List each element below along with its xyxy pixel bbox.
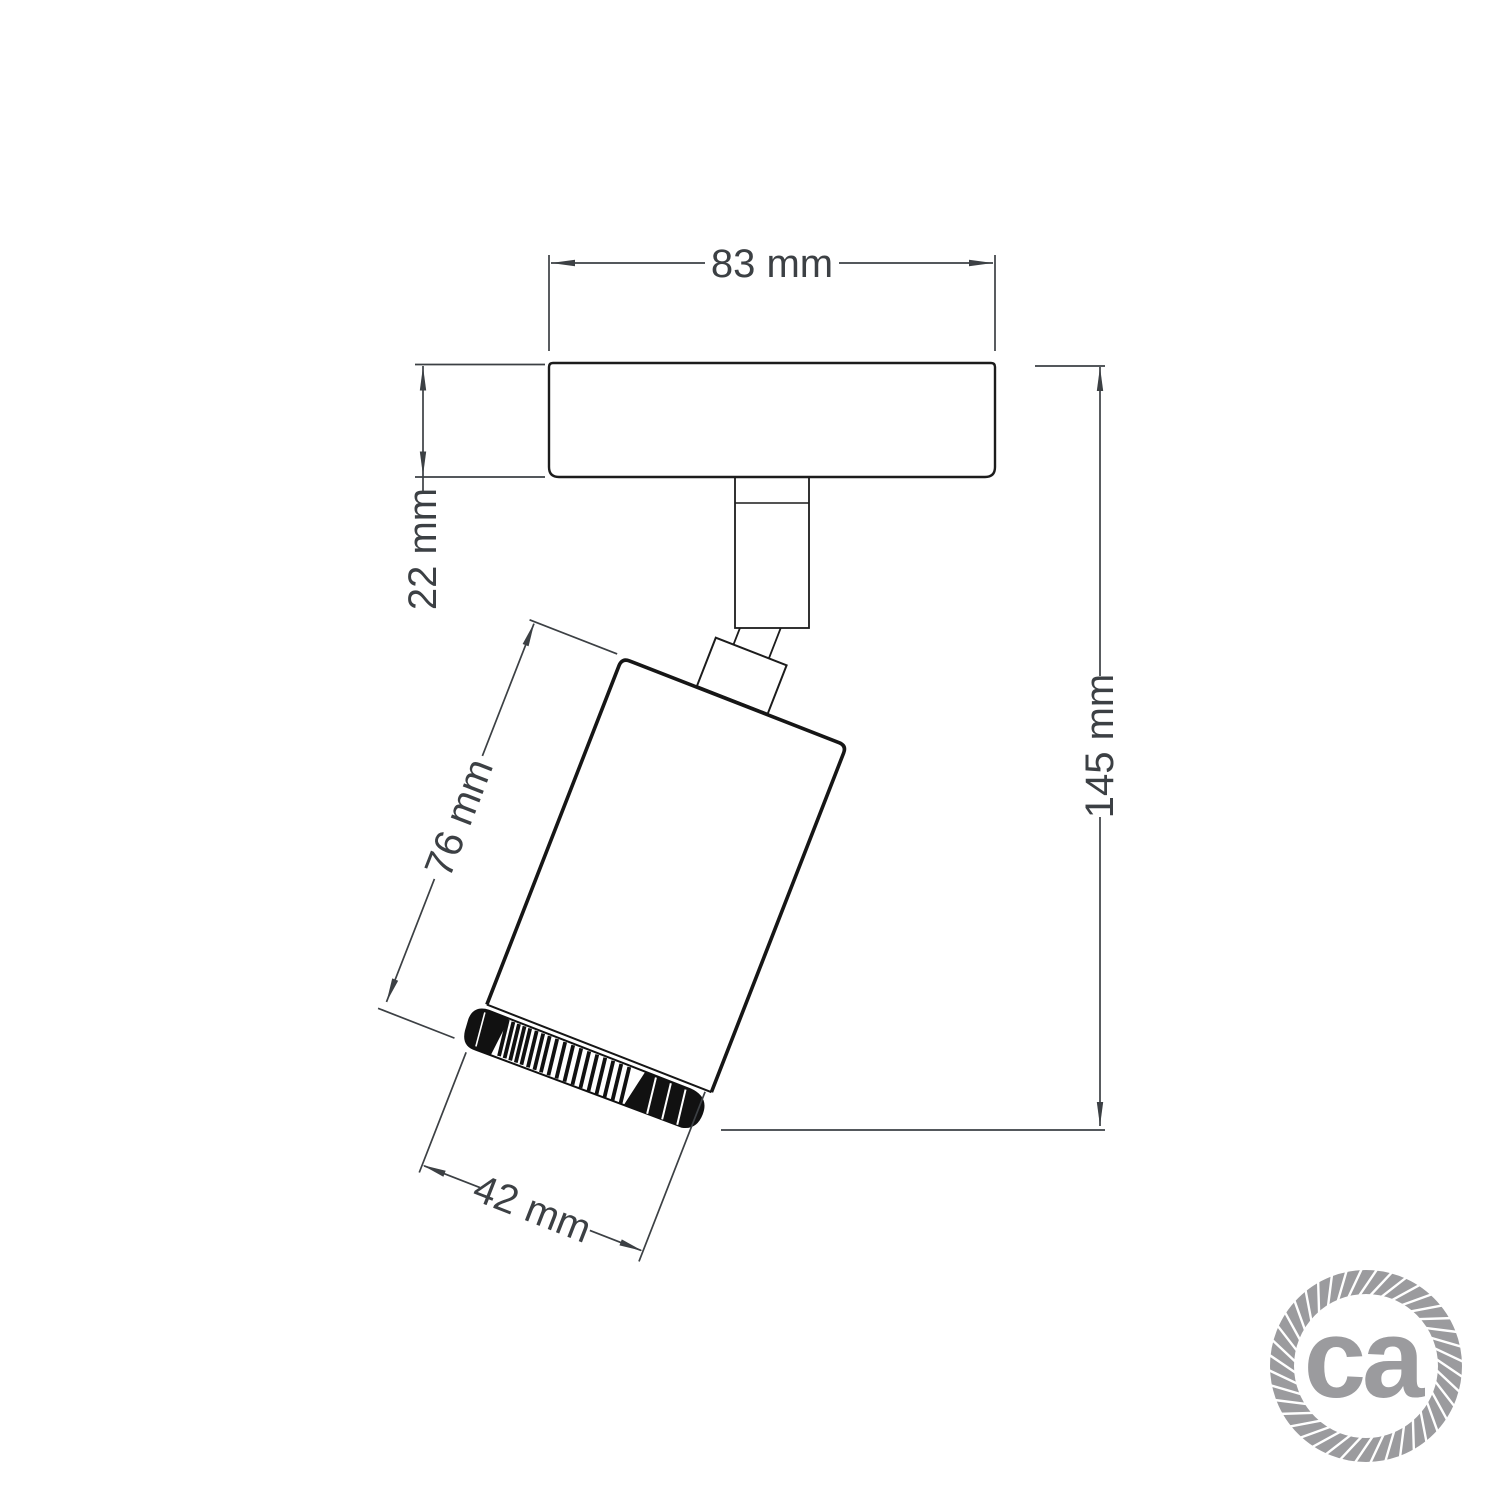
svg-text:22 mm: 22 mm [401,488,445,610]
svg-text:145 mm: 145 mm [1078,674,1122,819]
svg-text:ca: ca [1304,1296,1425,1421]
svg-text:42 mm: 42 mm [467,1166,597,1251]
svg-text:83 mm: 83 mm [711,242,833,286]
svg-text:76 mm: 76 mm [417,753,502,883]
